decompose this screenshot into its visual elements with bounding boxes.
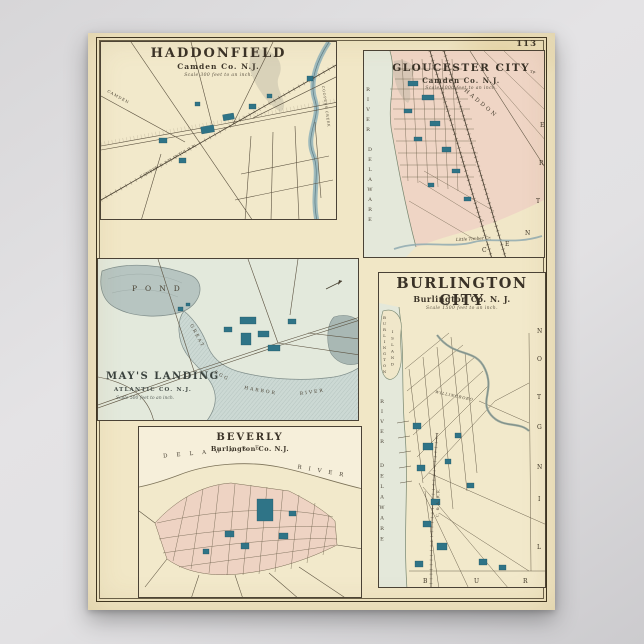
map-title-mays-landing: MAY'S LANDING <box>106 371 220 382</box>
label-railroad: CAMDEN & ATLANTIC R.R. <box>140 143 198 179</box>
label-creek: COOPERS CREEK <box>321 86 331 128</box>
svg-text:R: R <box>539 160 544 167</box>
map-scale-mays-landing: Scale 500 feet to an inch. <box>116 396 174 401</box>
label-delaware-vertical: DELAWARE <box>379 463 385 547</box>
svg-text:L: L <box>537 544 541 551</box>
svg-text:U: U <box>474 578 479 585</box>
page-number: 113 <box>516 39 537 49</box>
map-panel-mays-landing: POND GREAT EGG HARBOR RIVER MAY'S LANDIN… <box>97 258 359 421</box>
label-railroad: C. & A. R.R. <box>436 488 441 517</box>
map-panel-haddonfield: CAMDEN CAMDEN & ATLANTIC R.R. COOPERS CR… <box>100 41 337 220</box>
svg-text:E: E <box>505 241 509 248</box>
map-subtitle-mays-landing: ATLANTIC CO. N.J. <box>114 387 192 393</box>
burlington-map-drawing: WILLINGBORO C. & A. R.R. N O T G N I L B… <box>379 273 546 588</box>
map-scale-haddonfield: Scale 300 feet to an inch. <box>101 73 336 78</box>
map-panel-gloucester-city: HADDON Tp. Little Timber Cr. C E N T R E… <box>363 50 545 258</box>
svg-text:N: N <box>537 328 542 335</box>
svg-text:E: E <box>540 122 544 129</box>
map-subtitle-haddonfield: Camden Co. N.J. <box>101 62 336 71</box>
label-burlington-island-line1: BURLINGTON <box>382 315 387 375</box>
svg-text:N: N <box>537 464 542 471</box>
map-subtitle-gloucester-city: Camden Co. N.J. <box>378 76 544 85</box>
label-burlington-island-line2: ISLAND <box>390 329 395 368</box>
map-title-gloucester-city: GLOUCESTER CITY <box>378 62 544 74</box>
svg-text:R: R <box>523 578 528 585</box>
map-title-beverly: BEVERLY <box>139 432 361 443</box>
label-river-vertical: RIVER <box>365 87 371 137</box>
label-willingboro-road: WILLINGBORO <box>435 389 474 402</box>
burlington-streets <box>405 333 546 588</box>
assiscunk-creek <box>437 335 529 431</box>
svg-text:N: N <box>525 230 530 237</box>
label-river-vertical: RIVER <box>379 399 385 449</box>
map-scale-gloucester-city: Scale 1000 feet to an inch. <box>378 86 544 91</box>
map-subtitle-burlington-city: Burlington Co. N. J. <box>379 294 545 304</box>
svg-text:G: G <box>537 424 542 431</box>
map-panel-burlington-city: WILLINGBORO C. & A. R.R. N O T G N I L B… <box>378 272 546 588</box>
burlington-buildings <box>413 423 506 570</box>
label-camden-road: CAMDEN <box>107 89 131 105</box>
svg-text:I: I <box>538 496 541 503</box>
map-panel-beverly: BEVERLY Burlington Co. N.J. DELAWARE RIV… <box>138 426 362 598</box>
svg-text:B: B <box>423 578 428 585</box>
map-title-haddonfield: HADDONFIELD <box>101 46 336 61</box>
atlas-page: 113 <box>88 33 555 610</box>
svg-text:C: C <box>482 247 487 254</box>
backdrop: 113 <box>0 0 644 644</box>
label-delaware-vertical: DELAWARE <box>367 147 373 227</box>
map-scale-burlington-city: Scale 1500 feet to an inch. <box>379 306 545 311</box>
svg-text:O: O <box>537 356 542 363</box>
cove-east <box>328 315 359 364</box>
label-pond: POND <box>132 284 188 293</box>
svg-text:T: T <box>537 394 541 401</box>
railroad-line <box>101 64 337 200</box>
svg-text:T: T <box>536 198 540 205</box>
